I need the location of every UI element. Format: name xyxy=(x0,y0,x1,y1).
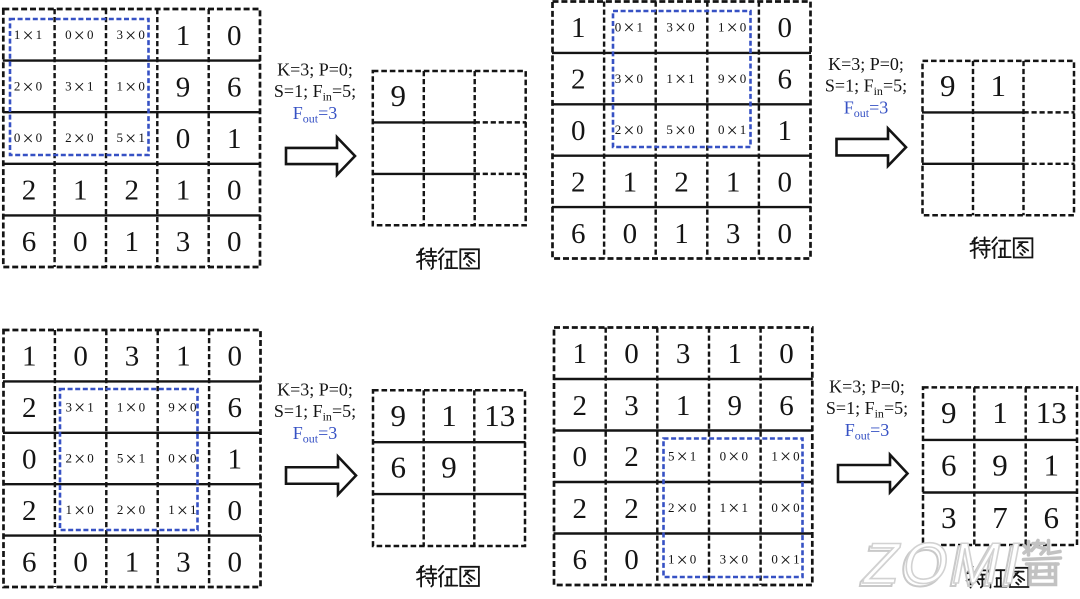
svg-text:0: 0 xyxy=(228,495,243,527)
svg-text:6: 6 xyxy=(227,71,242,103)
svg-text:1: 1 xyxy=(990,68,1006,103)
svg-text:6: 6 xyxy=(391,450,407,485)
svg-text:0: 0 xyxy=(228,341,243,373)
svg-text:9: 9 xyxy=(441,450,457,485)
svg-text:9: 9 xyxy=(391,78,407,113)
svg-text:1: 1 xyxy=(571,12,586,44)
svg-text:1: 1 xyxy=(73,175,88,207)
svg-text:1: 1 xyxy=(623,166,638,198)
svg-text:2: 2 xyxy=(573,390,588,422)
svg-text:0: 0 xyxy=(777,166,792,198)
svg-text:3: 3 xyxy=(941,500,957,535)
svg-text:9: 9 xyxy=(391,398,407,433)
svg-text:6: 6 xyxy=(941,448,957,483)
svg-text:0: 0 xyxy=(22,444,37,476)
svg-text:0: 0 xyxy=(227,20,242,52)
svg-text:0: 0 xyxy=(573,441,588,473)
svg-text:2: 2 xyxy=(624,493,639,525)
svg-text:9: 9 xyxy=(940,68,956,103)
svg-text:2: 2 xyxy=(674,166,689,198)
svg-text:3: 3 xyxy=(176,546,191,578)
svg-text:1: 1 xyxy=(992,395,1008,430)
svg-text:3: 3 xyxy=(676,338,691,370)
svg-text:6: 6 xyxy=(777,64,792,96)
svg-text:6: 6 xyxy=(228,392,243,424)
svg-text:2: 2 xyxy=(573,493,588,525)
svg-text:0: 0 xyxy=(227,226,242,258)
svg-text:6: 6 xyxy=(779,390,794,422)
svg-text:3: 3 xyxy=(125,341,140,373)
svg-text:2: 2 xyxy=(124,175,139,207)
svg-text:2: 2 xyxy=(22,495,37,527)
svg-text:0: 0 xyxy=(624,544,639,576)
svg-text:0: 0 xyxy=(623,218,638,250)
svg-text:1: 1 xyxy=(726,166,741,198)
svg-text:3: 3 xyxy=(726,218,741,250)
svg-text:1: 1 xyxy=(441,398,457,433)
svg-text:0: 0 xyxy=(227,175,242,207)
svg-text:1: 1 xyxy=(728,338,743,370)
svg-text:2: 2 xyxy=(571,64,586,96)
svg-text:ZOMI: ZOMI xyxy=(862,532,1024,596)
svg-text:1: 1 xyxy=(676,390,691,422)
svg-text:2: 2 xyxy=(22,175,37,207)
svg-text:0: 0 xyxy=(779,338,794,370)
svg-text:2: 2 xyxy=(22,392,37,424)
svg-text:1: 1 xyxy=(777,115,792,147)
svg-text:6: 6 xyxy=(1044,500,1060,535)
svg-text:1: 1 xyxy=(228,444,243,476)
svg-text:1: 1 xyxy=(176,20,191,52)
svg-text:1: 1 xyxy=(674,218,689,250)
svg-text:1: 1 xyxy=(573,338,588,370)
svg-text:0: 0 xyxy=(777,218,792,250)
svg-text:1: 1 xyxy=(176,341,191,373)
svg-text:S=1; Fin=5;: S=1; Fin=5; xyxy=(274,401,356,424)
svg-text:6: 6 xyxy=(22,546,37,578)
svg-text:S=1; Fin=5;: S=1; Fin=5; xyxy=(826,398,908,421)
svg-text:K=3; P=0;: K=3; P=0; xyxy=(277,380,353,400)
svg-text:3: 3 xyxy=(624,390,639,422)
svg-text:9: 9 xyxy=(992,448,1008,483)
svg-text:1: 1 xyxy=(124,226,139,258)
svg-text:S=1; Fin=5;: S=1; Fin=5; xyxy=(274,81,356,104)
svg-text:0: 0 xyxy=(624,338,639,370)
svg-text:S=1; Fin=5;: S=1; Fin=5; xyxy=(825,76,907,99)
svg-text:9: 9 xyxy=(728,390,743,422)
svg-text:0: 0 xyxy=(176,123,191,155)
svg-text:0: 0 xyxy=(571,115,586,147)
svg-text:K=3; P=0;: K=3; P=0; xyxy=(277,60,353,80)
svg-text:13: 13 xyxy=(1036,395,1067,430)
svg-text:9: 9 xyxy=(941,395,957,430)
svg-text:9: 9 xyxy=(176,71,191,103)
svg-text:1: 1 xyxy=(176,175,191,207)
svg-text:0: 0 xyxy=(73,341,88,373)
svg-text:0: 0 xyxy=(777,12,792,44)
svg-text:K=3; P=0;: K=3; P=0; xyxy=(829,377,905,397)
svg-text:13: 13 xyxy=(484,398,515,433)
svg-text:1: 1 xyxy=(22,341,37,373)
svg-text:6: 6 xyxy=(571,218,586,250)
svg-text:0: 0 xyxy=(73,226,88,258)
svg-text:0: 0 xyxy=(228,546,243,578)
svg-text:1: 1 xyxy=(227,123,242,155)
svg-text:3: 3 xyxy=(176,226,191,258)
svg-text:1: 1 xyxy=(1044,448,1060,483)
svg-text:0: 0 xyxy=(73,546,88,578)
svg-text:6: 6 xyxy=(22,226,37,258)
svg-text:7: 7 xyxy=(992,500,1008,535)
svg-text:6: 6 xyxy=(573,544,588,576)
svg-text:K=3; P=0;: K=3; P=0; xyxy=(828,54,904,74)
svg-text:2: 2 xyxy=(571,166,586,198)
svg-text:1: 1 xyxy=(125,546,140,578)
svg-text:2: 2 xyxy=(624,441,639,473)
